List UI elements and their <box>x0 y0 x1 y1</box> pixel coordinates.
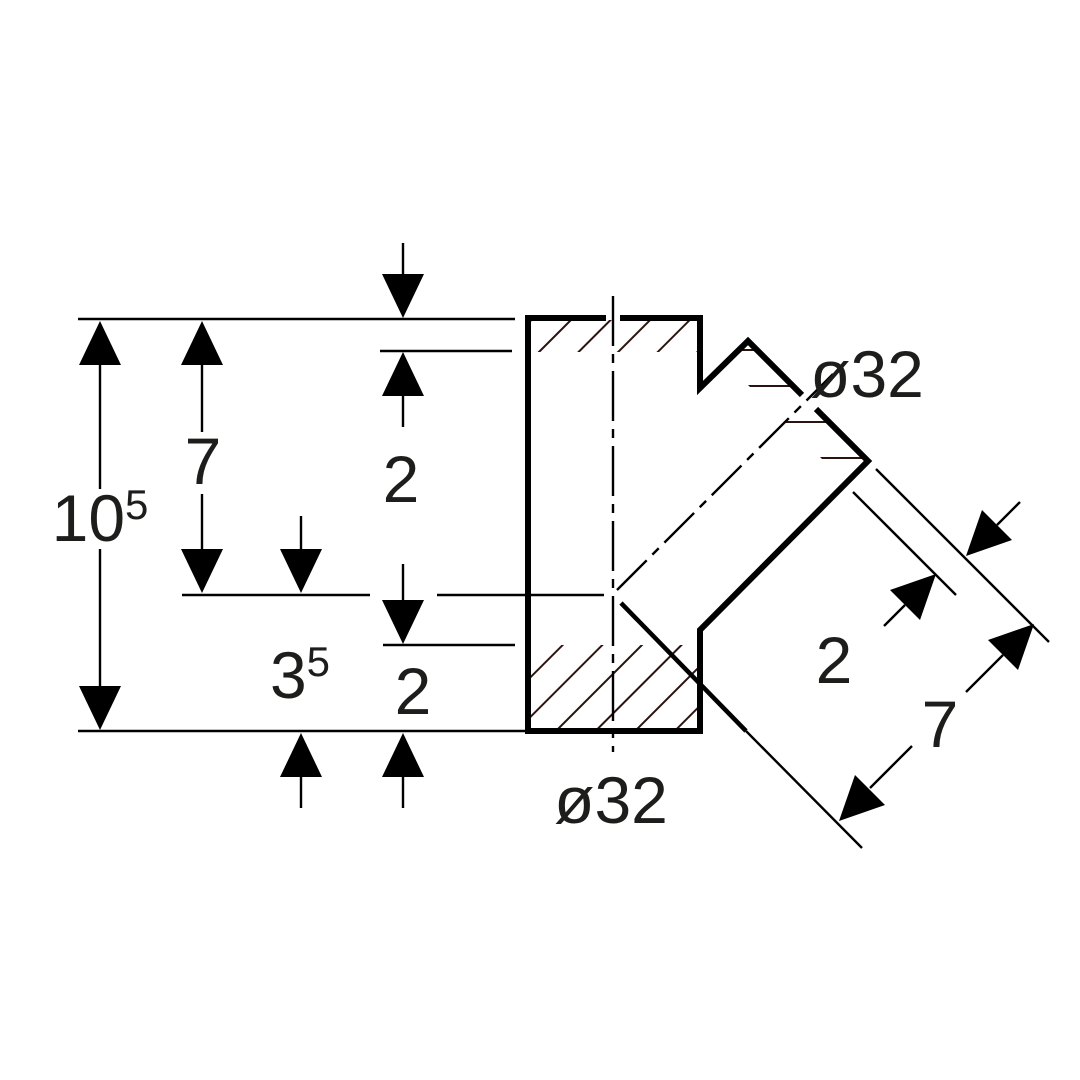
dimension-branch-depth: 7 <box>839 624 1034 821</box>
label-overall-height: 105 <box>52 481 149 555</box>
label-branch-wall: 2 <box>816 623 853 697</box>
label-bottom-section: 35 <box>270 638 330 712</box>
label-branch-depth: 7 <box>922 687 959 761</box>
dimension-bottom-section: 35 <box>270 516 330 808</box>
label-branch-diameter: ø32 <box>810 337 924 411</box>
dimension-top-wall: 2 <box>382 243 424 516</box>
technical-drawing-page: 105 7 2 35 2 2 <box>0 0 1080 1080</box>
fitting-section-drawing: 105 7 2 35 2 2 <box>0 0 1080 1080</box>
label-bottom-wall: 2 <box>395 654 432 728</box>
label-main-diameter: ø32 <box>554 763 668 837</box>
dimension-top-to-junction: 7 <box>181 321 223 593</box>
label-top-to-junction: 7 <box>185 424 222 498</box>
dimension-bottom-wall: 2 <box>382 564 431 808</box>
dimension-overall-height: 105 <box>52 321 149 730</box>
branch-centerline <box>617 374 833 590</box>
label-top-wall: 2 <box>383 442 420 516</box>
